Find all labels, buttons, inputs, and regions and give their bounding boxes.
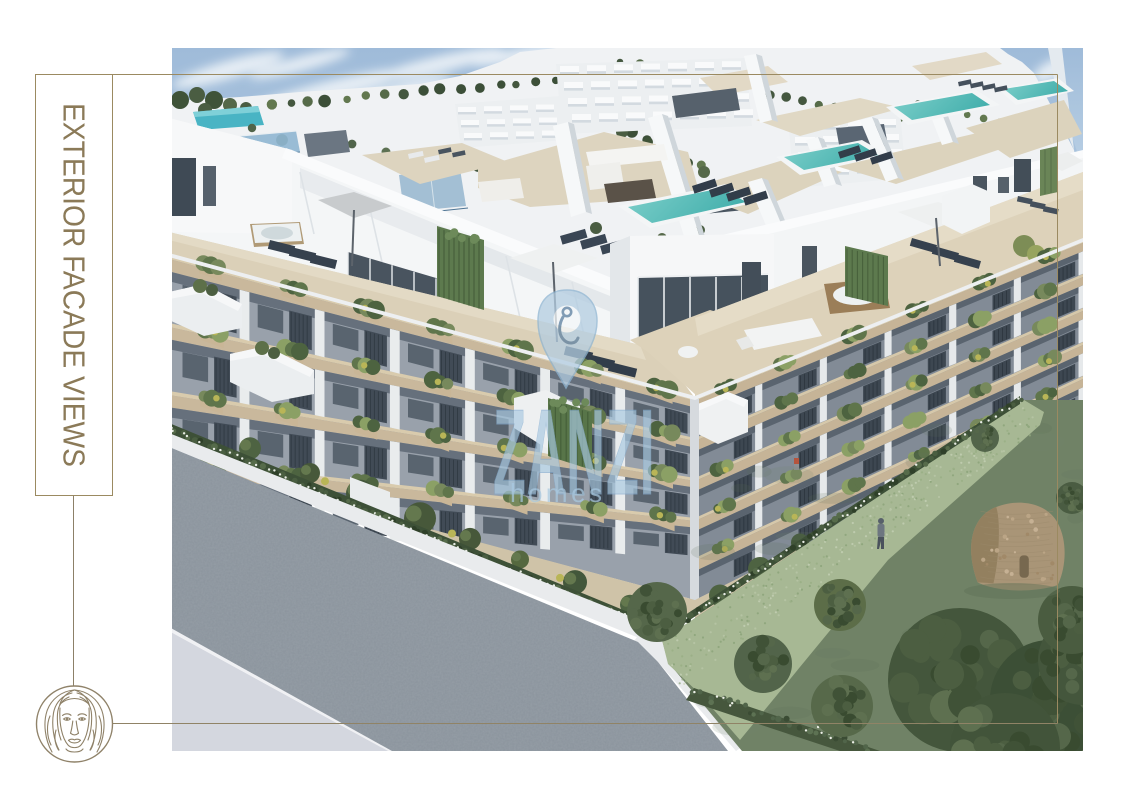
svg-text:homes: homes (510, 478, 606, 508)
svg-text:EXTERIOR FACADE VIEWS: EXTERIOR FACADE VIEWS (57, 103, 92, 467)
